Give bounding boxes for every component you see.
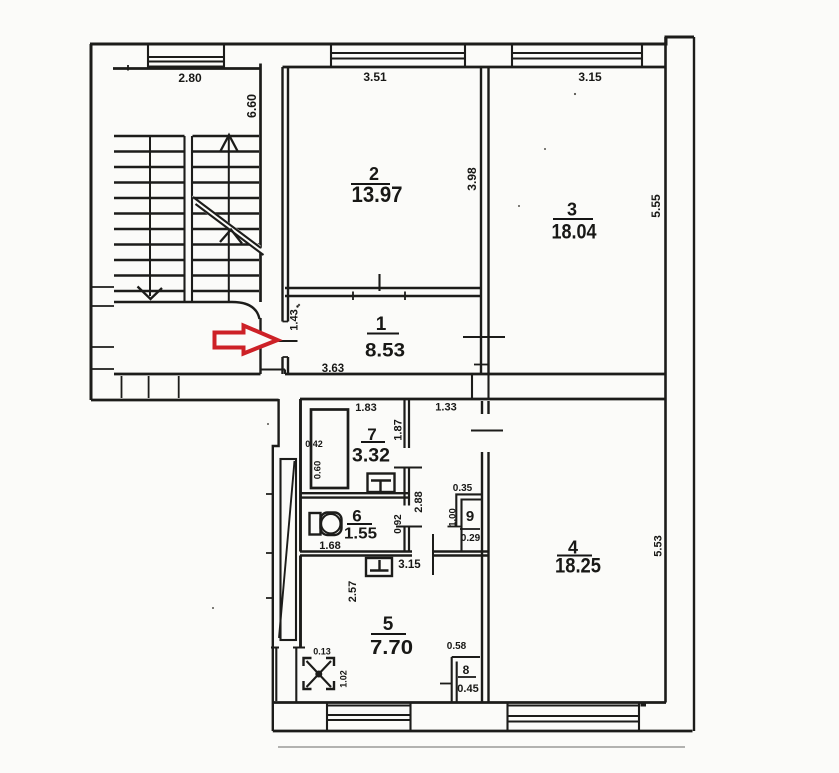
svg-text:3.63: 3.63: [322, 363, 344, 375]
svg-text:1.33: 1.33: [435, 402, 456, 414]
svg-text:0.29: 0.29: [461, 533, 481, 544]
svg-text:1.55: 1.55: [344, 526, 377, 543]
svg-text:1: 1: [376, 314, 387, 335]
svg-text:3.15: 3.15: [578, 70, 602, 84]
svg-text:2.80: 2.80: [178, 71, 202, 85]
svg-text:3.98: 3.98: [465, 167, 479, 191]
svg-text:0.35: 0.35: [453, 483, 473, 494]
svg-text:9: 9: [466, 508, 474, 525]
svg-text:0.58: 0.58: [447, 641, 467, 652]
svg-text:5.55: 5.55: [649, 194, 663, 218]
svg-text:1.87: 1.87: [393, 419, 405, 440]
svg-text:0.60: 0.60: [313, 461, 324, 480]
svg-text:18.25: 18.25: [555, 555, 601, 578]
svg-text:8.53: 8.53: [365, 341, 405, 362]
svg-text:8: 8: [463, 663, 470, 677]
svg-text:6: 6: [352, 507, 361, 526]
svg-text:0.42: 0.42: [305, 439, 323, 449]
svg-text:1.83: 1.83: [355, 402, 376, 414]
svg-text:2.88: 2.88: [413, 491, 425, 512]
svg-text:5: 5: [383, 614, 394, 635]
svg-text:13.97: 13.97: [352, 182, 403, 207]
svg-text:3.51: 3.51: [363, 70, 387, 84]
svg-text:0.92: 0.92: [393, 514, 404, 534]
svg-text:1.43: 1.43: [289, 309, 301, 330]
svg-text:5.53: 5.53: [653, 535, 665, 556]
svg-text:0.13: 0.13: [313, 647, 331, 657]
svg-text:1.00: 1.00: [448, 508, 459, 527]
svg-text:6.60: 6.60: [244, 94, 259, 118]
svg-text:18.04: 18.04: [552, 221, 597, 244]
svg-text:2: 2: [369, 164, 379, 184]
svg-text:1.02: 1.02: [339, 670, 349, 688]
svg-text:3.15: 3.15: [398, 559, 421, 571]
svg-text:3.32: 3.32: [352, 446, 390, 467]
svg-text:3: 3: [567, 200, 577, 220]
svg-text:0.45: 0.45: [457, 683, 478, 695]
svg-text:2.57: 2.57: [347, 581, 359, 602]
svg-text:1.68: 1.68: [319, 540, 340, 552]
svg-text:7.70: 7.70: [370, 637, 413, 659]
